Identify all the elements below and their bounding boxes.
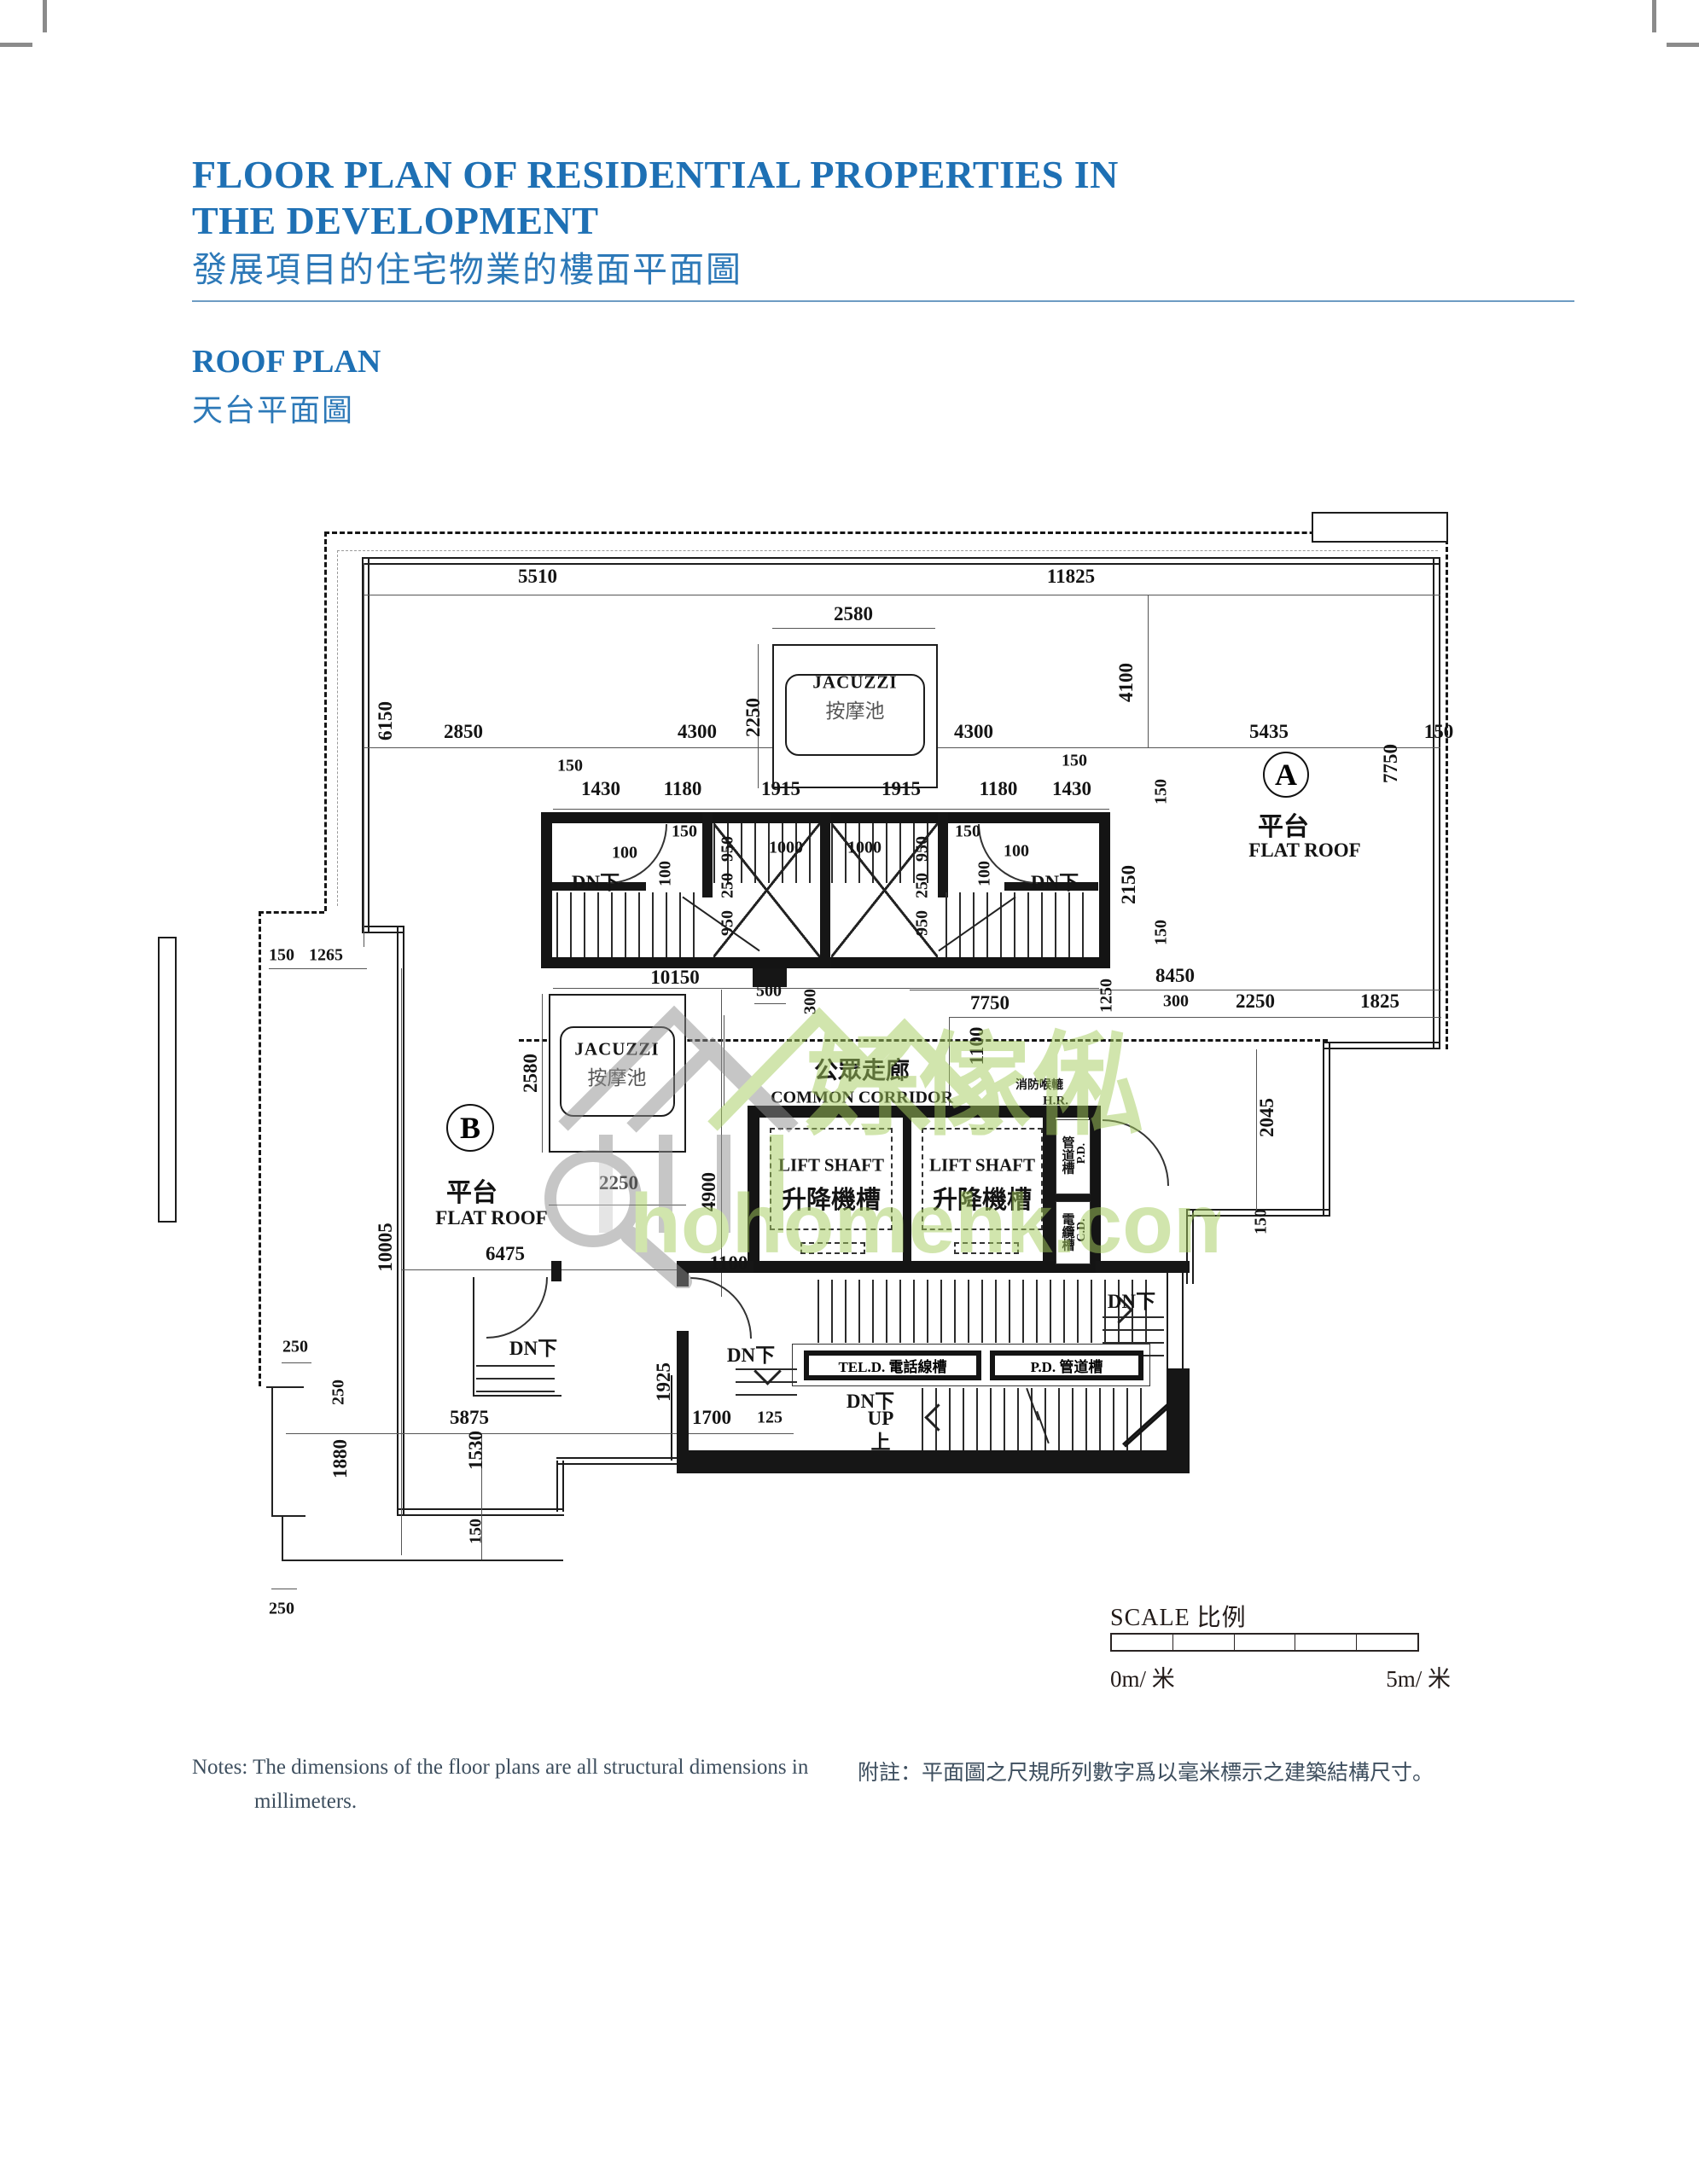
boundary-dashed bbox=[259, 911, 324, 914]
scale-bar-segment bbox=[1235, 1635, 1296, 1650]
boundary-dashed bbox=[1446, 531, 1448, 1049]
dim-line bbox=[553, 809, 1109, 810]
boundary-dashed-inner bbox=[337, 550, 1438, 551]
flat-roof-label: FLAT ROOF bbox=[1248, 839, 1360, 862]
dn-label: DN下 bbox=[509, 1332, 557, 1361]
lift-door-outline bbox=[800, 1242, 865, 1254]
crop-mark bbox=[43, 0, 47, 32]
cable-duct-label: C.D. bbox=[1075, 1218, 1089, 1241]
page-title-zh: 發展項目的住宅物業的樓面平面圖 bbox=[192, 241, 742, 292]
dim-line bbox=[269, 968, 367, 969]
dim-label: 5875 bbox=[450, 1407, 489, 1429]
dim-label: 1000 bbox=[769, 839, 803, 858]
dim-line bbox=[772, 628, 935, 629]
floor-plan-page: FLOOR PLAN OF RESIDENTIAL PROPERTIES IN … bbox=[0, 0, 1699, 2184]
jacuzzi-label: JACUZZI bbox=[574, 1039, 659, 1060]
parapet-wall bbox=[1323, 1042, 1440, 1049]
dim-label: 125 bbox=[757, 1409, 783, 1428]
dim-label: 250 bbox=[329, 1380, 349, 1405]
dim-label: 1430 bbox=[581, 778, 620, 800]
dim-label: 250 bbox=[282, 1338, 308, 1357]
dim-label: 1530 bbox=[465, 1431, 487, 1470]
dim-label: 2250 bbox=[742, 698, 765, 737]
wall-line bbox=[473, 1277, 474, 1397]
wall bbox=[1096, 1261, 1190, 1273]
dim-label: 150 bbox=[1062, 752, 1087, 771]
dim-label: 4300 bbox=[954, 721, 993, 743]
dim-label: 2580 bbox=[834, 603, 873, 625]
wall bbox=[702, 812, 713, 897]
lift-shaft-label-zh: 升降機槽 bbox=[933, 1180, 1032, 1216]
dim-label: 7750 bbox=[1380, 744, 1402, 783]
dim-label: 150 bbox=[557, 757, 583, 776]
door-arc bbox=[690, 1277, 752, 1339]
wall bbox=[677, 1261, 689, 1287]
dim-label: 10005 bbox=[375, 1223, 397, 1272]
dim-label: 100 bbox=[1004, 842, 1029, 862]
crop-mark bbox=[1652, 0, 1656, 32]
wall bbox=[677, 1450, 1190, 1473]
wall bbox=[938, 812, 948, 897]
dim-label: 950 bbox=[719, 836, 738, 862]
unit-b-badge: B bbox=[446, 1104, 494, 1152]
flat-roof-label-zh: 平台 bbox=[446, 1171, 497, 1209]
dim-label: 2045 bbox=[1256, 1098, 1278, 1137]
scale-label: SCALE 比例 bbox=[1110, 1599, 1247, 1633]
unit-a-letter: A bbox=[1275, 757, 1297, 793]
jacuzzi-label: JACUZZI bbox=[812, 672, 897, 694]
unit-a-badge: A bbox=[1263, 752, 1309, 798]
wall-line bbox=[724, 1015, 724, 1106]
page-title: FLOOR PLAN OF RESIDENTIAL PROPERTIES IN … bbox=[192, 152, 1119, 244]
dim-label: 1265 bbox=[309, 946, 343, 966]
header-divider bbox=[192, 300, 1574, 302]
dim-line bbox=[542, 994, 543, 1153]
lift-shaft-label-zh: 升降機槽 bbox=[782, 1180, 881, 1216]
dim-label: 150 bbox=[1252, 1209, 1271, 1234]
scale-bar-segment bbox=[1173, 1635, 1235, 1650]
window-strip bbox=[1167, 1273, 1184, 1368]
parapet-wall bbox=[1323, 1042, 1330, 1217]
wall bbox=[1056, 1194, 1091, 1201]
dim-label: 1180 bbox=[980, 778, 1018, 800]
dim-label: 2580 bbox=[520, 1054, 542, 1093]
dim-line bbox=[1148, 595, 1149, 747]
dim-label: 150 bbox=[269, 946, 294, 966]
watermark-magnifier-icon bbox=[550, 1156, 636, 1241]
dim-line bbox=[401, 968, 402, 1555]
boundary-line bbox=[271, 1515, 305, 1517]
jacuzzi-label-zh: 按摩池 bbox=[588, 1061, 647, 1090]
scale-bar-segment bbox=[1112, 1635, 1173, 1650]
dim-label: 1700 bbox=[692, 1407, 731, 1429]
dim-label: 10150 bbox=[650, 967, 700, 989]
dim-line bbox=[364, 595, 1440, 595]
dim-label: 2250 bbox=[1236, 990, 1275, 1013]
dim-label: 1180 bbox=[664, 778, 702, 800]
notes-en-line2: millimeters. bbox=[254, 1790, 357, 1814]
flat-roof-label: FLAT ROOF bbox=[435, 1207, 547, 1229]
scale-bar bbox=[1110, 1633, 1419, 1652]
notes-en-line1: Notes: The dimensions of the floor plans… bbox=[192, 1756, 808, 1780]
boundary-line bbox=[271, 1386, 273, 1517]
dim-line bbox=[754, 1003, 786, 1004]
scale-bar-segment bbox=[1357, 1635, 1417, 1650]
dim-label: 1100 bbox=[966, 1027, 988, 1066]
wall bbox=[903, 1118, 911, 1261]
corridor-label-zh: 公眾走廊 bbox=[814, 1052, 910, 1086]
boundary-dashed bbox=[259, 911, 261, 1386]
lift-door-outline bbox=[954, 1242, 1019, 1254]
dim-label: 950 bbox=[913, 836, 933, 862]
dim-line bbox=[721, 990, 722, 1297]
boundary-dashed bbox=[324, 531, 1446, 534]
dim-label: 150 bbox=[1152, 779, 1172, 804]
section-heading-zh: 天台平面圖 bbox=[192, 386, 354, 430]
dim-line bbox=[282, 1362, 311, 1363]
dim-label: 950 bbox=[913, 910, 933, 936]
dim-label: 6475 bbox=[486, 1243, 525, 1265]
door-arc bbox=[1103, 1119, 1169, 1186]
watermark-magnifier-handle bbox=[630, 1235, 683, 1281]
cable-duct-label-zh: 電纜槽 bbox=[1059, 1213, 1077, 1252]
stair-treads bbox=[556, 892, 706, 957]
dim-label: 7750 bbox=[970, 992, 1010, 1014]
unit-b-letter: B bbox=[460, 1110, 480, 1146]
dn-label: DN下 bbox=[1108, 1285, 1155, 1314]
scale-five-label: 5m/ 米 bbox=[1386, 1660, 1451, 1693]
dim-label: 150 bbox=[672, 822, 697, 842]
dim-line bbox=[364, 563, 364, 947]
boundary-dashed bbox=[324, 531, 327, 911]
dim-label: 5510 bbox=[518, 566, 557, 588]
dim-label: 300 bbox=[801, 989, 821, 1014]
dim-label: 1925 bbox=[653, 1362, 675, 1402]
hose-reel-label: H.R. bbox=[1043, 1095, 1068, 1109]
dim-label: 250 bbox=[719, 873, 738, 898]
dim-label: 1915 bbox=[882, 778, 921, 800]
dim-label: 11825 bbox=[1047, 566, 1095, 588]
dim-label: 1100 bbox=[710, 1252, 748, 1275]
dim-label: 100 bbox=[656, 861, 676, 886]
dim-label: 250 bbox=[269, 1600, 294, 1619]
dim-label: 2150 bbox=[1118, 865, 1140, 904]
boundary-line bbox=[282, 1515, 283, 1560]
dim-label: 2850 bbox=[444, 721, 483, 743]
dim-label: 1825 bbox=[1360, 990, 1399, 1013]
dim-label: 500 bbox=[756, 982, 782, 1002]
roof-notch bbox=[1312, 512, 1448, 543]
dim-label: 150 bbox=[1152, 920, 1172, 945]
stair-treads bbox=[817, 1280, 1150, 1343]
notes-zh: 附註：平面圖之尺規所列數字爲以毫米標示之建築結構尺寸。 bbox=[858, 1756, 1434, 1786]
dim-label: 2250 bbox=[599, 1172, 638, 1194]
parapet-wall bbox=[556, 1457, 684, 1465]
parapet-wall bbox=[362, 557, 1440, 565]
dim-label: 5435 bbox=[1249, 721, 1289, 743]
page-title-line1: FLOOR PLAN OF RESIDENTIAL PROPERTIES IN bbox=[192, 152, 1119, 198]
dim-line bbox=[949, 1017, 1441, 1018]
flat-roof-label-zh: 平台 bbox=[1258, 805, 1309, 843]
parapet-wall bbox=[556, 1461, 564, 1512]
section-heading: ROOF PLAN bbox=[192, 343, 381, 380]
dim-line bbox=[271, 1589, 297, 1589]
wall bbox=[1043, 1118, 1056, 1261]
dim-label: 4100 bbox=[1115, 663, 1138, 702]
lift-shaft-label: LIFT SHAFT bbox=[929, 1155, 1035, 1176]
dim-label: 150 bbox=[955, 822, 980, 842]
hose-reel-label-zh: 消防喉轆 bbox=[1015, 1076, 1063, 1093]
door-arc bbox=[486, 1277, 548, 1339]
dim-label: 150 bbox=[467, 1519, 486, 1544]
wall bbox=[820, 812, 830, 968]
jacuzzi-label-zh: 按摩池 bbox=[826, 694, 885, 723]
dn-label: DN下 bbox=[572, 866, 620, 895]
boundary-dashed-inner bbox=[337, 550, 338, 906]
stair-treads bbox=[946, 892, 1095, 957]
parapet-wall bbox=[397, 1508, 564, 1516]
crop-mark bbox=[1667, 43, 1699, 47]
dim-line bbox=[553, 988, 1099, 989]
boundary-line bbox=[282, 1560, 563, 1561]
scale-bar-segment bbox=[1295, 1635, 1357, 1650]
dim-label: 4900 bbox=[698, 1172, 720, 1211]
dn-label: DN下 bbox=[1031, 866, 1079, 895]
dim-label: 4300 bbox=[678, 721, 717, 743]
dim-label: 150 bbox=[1424, 721, 1454, 743]
dim-label: 100 bbox=[612, 844, 637, 863]
dim-label: 1915 bbox=[761, 778, 800, 800]
dn-label: DN下 bbox=[727, 1339, 775, 1368]
dim-label: 6150 bbox=[375, 701, 397, 741]
dim-label: 1880 bbox=[329, 1439, 352, 1478]
dim-label: 8450 bbox=[1155, 965, 1195, 987]
dim-label: 1000 bbox=[847, 839, 882, 858]
dim-label: 250 bbox=[913, 873, 933, 898]
dim-line bbox=[286, 1433, 794, 1434]
stair-treads bbox=[476, 1360, 555, 1392]
wall bbox=[551, 1261, 561, 1281]
dim-label: 1250 bbox=[1097, 979, 1117, 1013]
tel-duct-box: TEL.D. 電話線槽 bbox=[804, 1350, 981, 1380]
parapet-wall bbox=[1433, 557, 1440, 1049]
wall-line bbox=[473, 1395, 561, 1397]
pipe-duct-box: P.D. 管道槽 bbox=[990, 1350, 1143, 1380]
boundary-strip bbox=[158, 937, 177, 1223]
crop-mark bbox=[0, 43, 32, 47]
dim-label: 950 bbox=[719, 910, 738, 936]
scale-zero-label: 0m/ 米 bbox=[1110, 1660, 1175, 1693]
stair-treads bbox=[922, 1388, 1148, 1450]
up-label: 上 bbox=[871, 1426, 891, 1455]
pipe-duct-label-zh: 管道槽 bbox=[1059, 1136, 1077, 1175]
corridor-label: COMMON CORRIDOR bbox=[771, 1089, 953, 1108]
dim-line bbox=[549, 1205, 686, 1205]
lift-shaft-label: LIFT SHAFT bbox=[778, 1155, 884, 1176]
pipe-duct-label: P.D. bbox=[1075, 1143, 1089, 1164]
dim-label: 100 bbox=[975, 861, 995, 886]
dim-label: 1430 bbox=[1052, 778, 1091, 800]
dim-label: 300 bbox=[1163, 992, 1189, 1012]
page-title-line2: THE DEVELOPMENT bbox=[192, 198, 1119, 244]
